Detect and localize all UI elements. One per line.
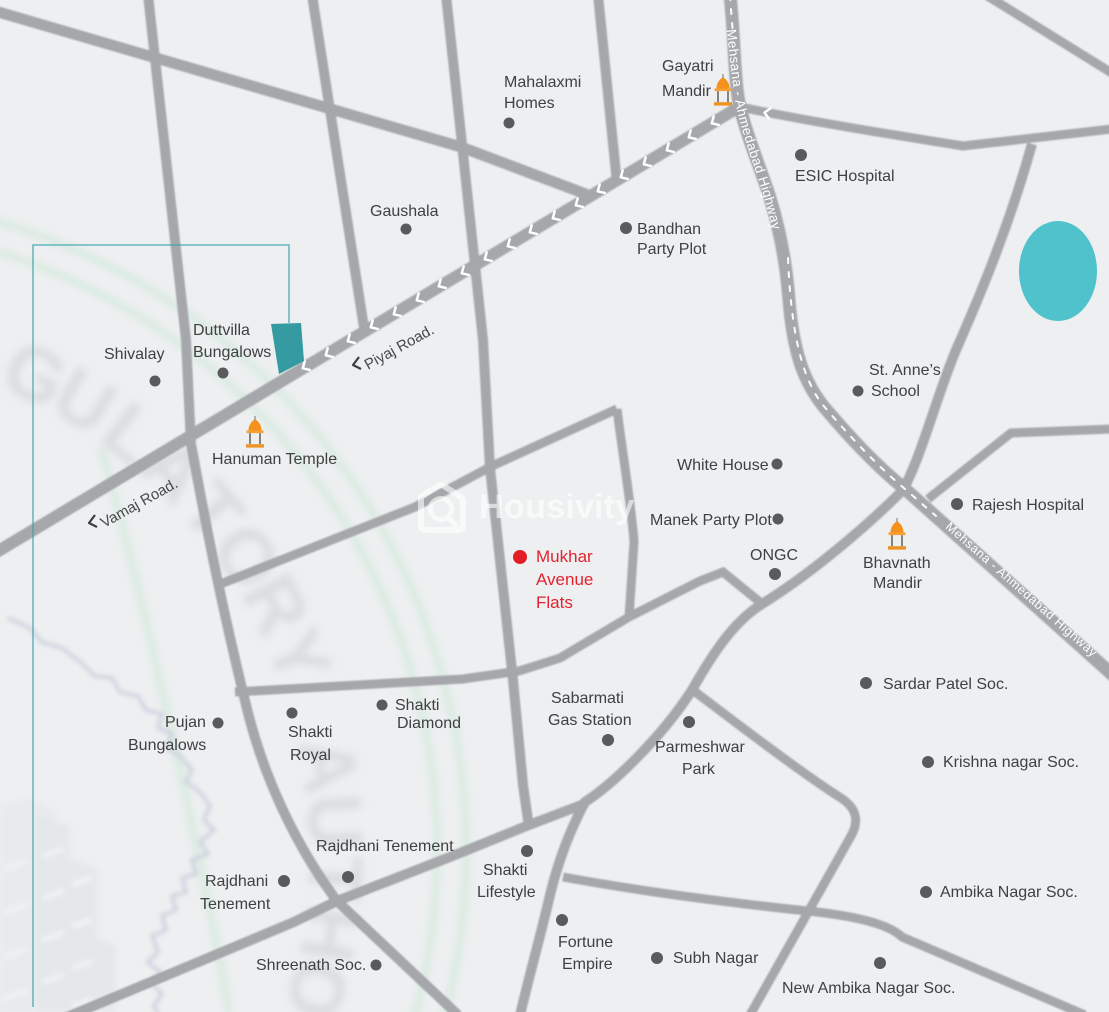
svg-text:Housivity: Housivity [479, 488, 634, 526]
svg-text:Bandhan: Bandhan [637, 221, 701, 238]
svg-text:Gas Station: Gas Station [548, 712, 632, 729]
svg-text:Diamond: Diamond [397, 715, 461, 732]
svg-text:Mukhar: Mukhar [536, 547, 593, 566]
svg-text:Rajesh Hospital: Rajesh Hospital [972, 497, 1084, 514]
svg-text:Shakti: Shakti [395, 697, 439, 714]
svg-text:Bungalows: Bungalows [128, 737, 206, 754]
svg-text:ONGC: ONGC [750, 547, 798, 564]
svg-text:Tenement: Tenement [200, 896, 271, 913]
svg-text:School: School [871, 383, 920, 400]
svg-text:Rajdhani Tenement: Rajdhani Tenement [316, 838, 454, 855]
svg-text:Hanuman Temple: Hanuman Temple [212, 451, 337, 468]
svg-text:Sabarmati: Sabarmati [551, 690, 624, 707]
svg-text:Sardar Patel Soc.: Sardar Patel Soc. [883, 676, 1008, 693]
svg-text:Shivalay: Shivalay [104, 346, 164, 363]
svg-text:Pujan: Pujan [165, 714, 206, 731]
svg-text:Avenue: Avenue [536, 570, 593, 589]
svg-text:Gayatri: Gayatri [662, 58, 714, 75]
svg-text:Parmeshwar: Parmeshwar [655, 739, 745, 756]
svg-text:Shakti: Shakti [288, 724, 332, 741]
svg-text:Rajdhani: Rajdhani [205, 873, 268, 890]
svg-text:Subh Nagar: Subh Nagar [673, 950, 759, 967]
svg-text:Mandir: Mandir [662, 83, 712, 100]
svg-text:Mahalaxmi: Mahalaxmi [504, 74, 581, 91]
svg-text:Krishna nagar Soc.: Krishna nagar Soc. [943, 754, 1079, 771]
svg-text:White House: White House [677, 457, 769, 474]
svg-text:ESIC Hospital: ESIC Hospital [795, 168, 895, 185]
svg-text:St. Anne’s: St. Anne’s [869, 362, 941, 379]
svg-text:Shakti: Shakti [483, 862, 527, 879]
svg-text:Homes: Homes [504, 95, 555, 112]
svg-text:Shreenath Soc.: Shreenath Soc. [256, 957, 366, 974]
svg-text:Mandir: Mandir [873, 575, 923, 592]
svg-text:Bungalows: Bungalows [193, 344, 271, 361]
svg-text:Royal: Royal [290, 747, 331, 764]
svg-text:Empire: Empire [562, 956, 613, 973]
svg-text:Ambika Nagar Soc.: Ambika Nagar Soc. [940, 884, 1078, 901]
svg-text:Bhavnath: Bhavnath [863, 555, 931, 572]
svg-text:Flats: Flats [536, 593, 573, 612]
svg-text:Park: Park [682, 761, 716, 778]
svg-text:Lifestyle: Lifestyle [477, 884, 536, 901]
svg-text:Duttvilla: Duttvilla [193, 322, 250, 339]
svg-text:Fortune: Fortune [558, 934, 613, 951]
svg-text:Party Plot: Party Plot [637, 241, 707, 258]
svg-text:New Ambika Nagar Soc.: New Ambika Nagar Soc. [782, 980, 955, 997]
svg-text:Manek Party Plot: Manek Party Plot [650, 512, 772, 529]
svg-text:Gaushala: Gaushala [370, 203, 439, 220]
